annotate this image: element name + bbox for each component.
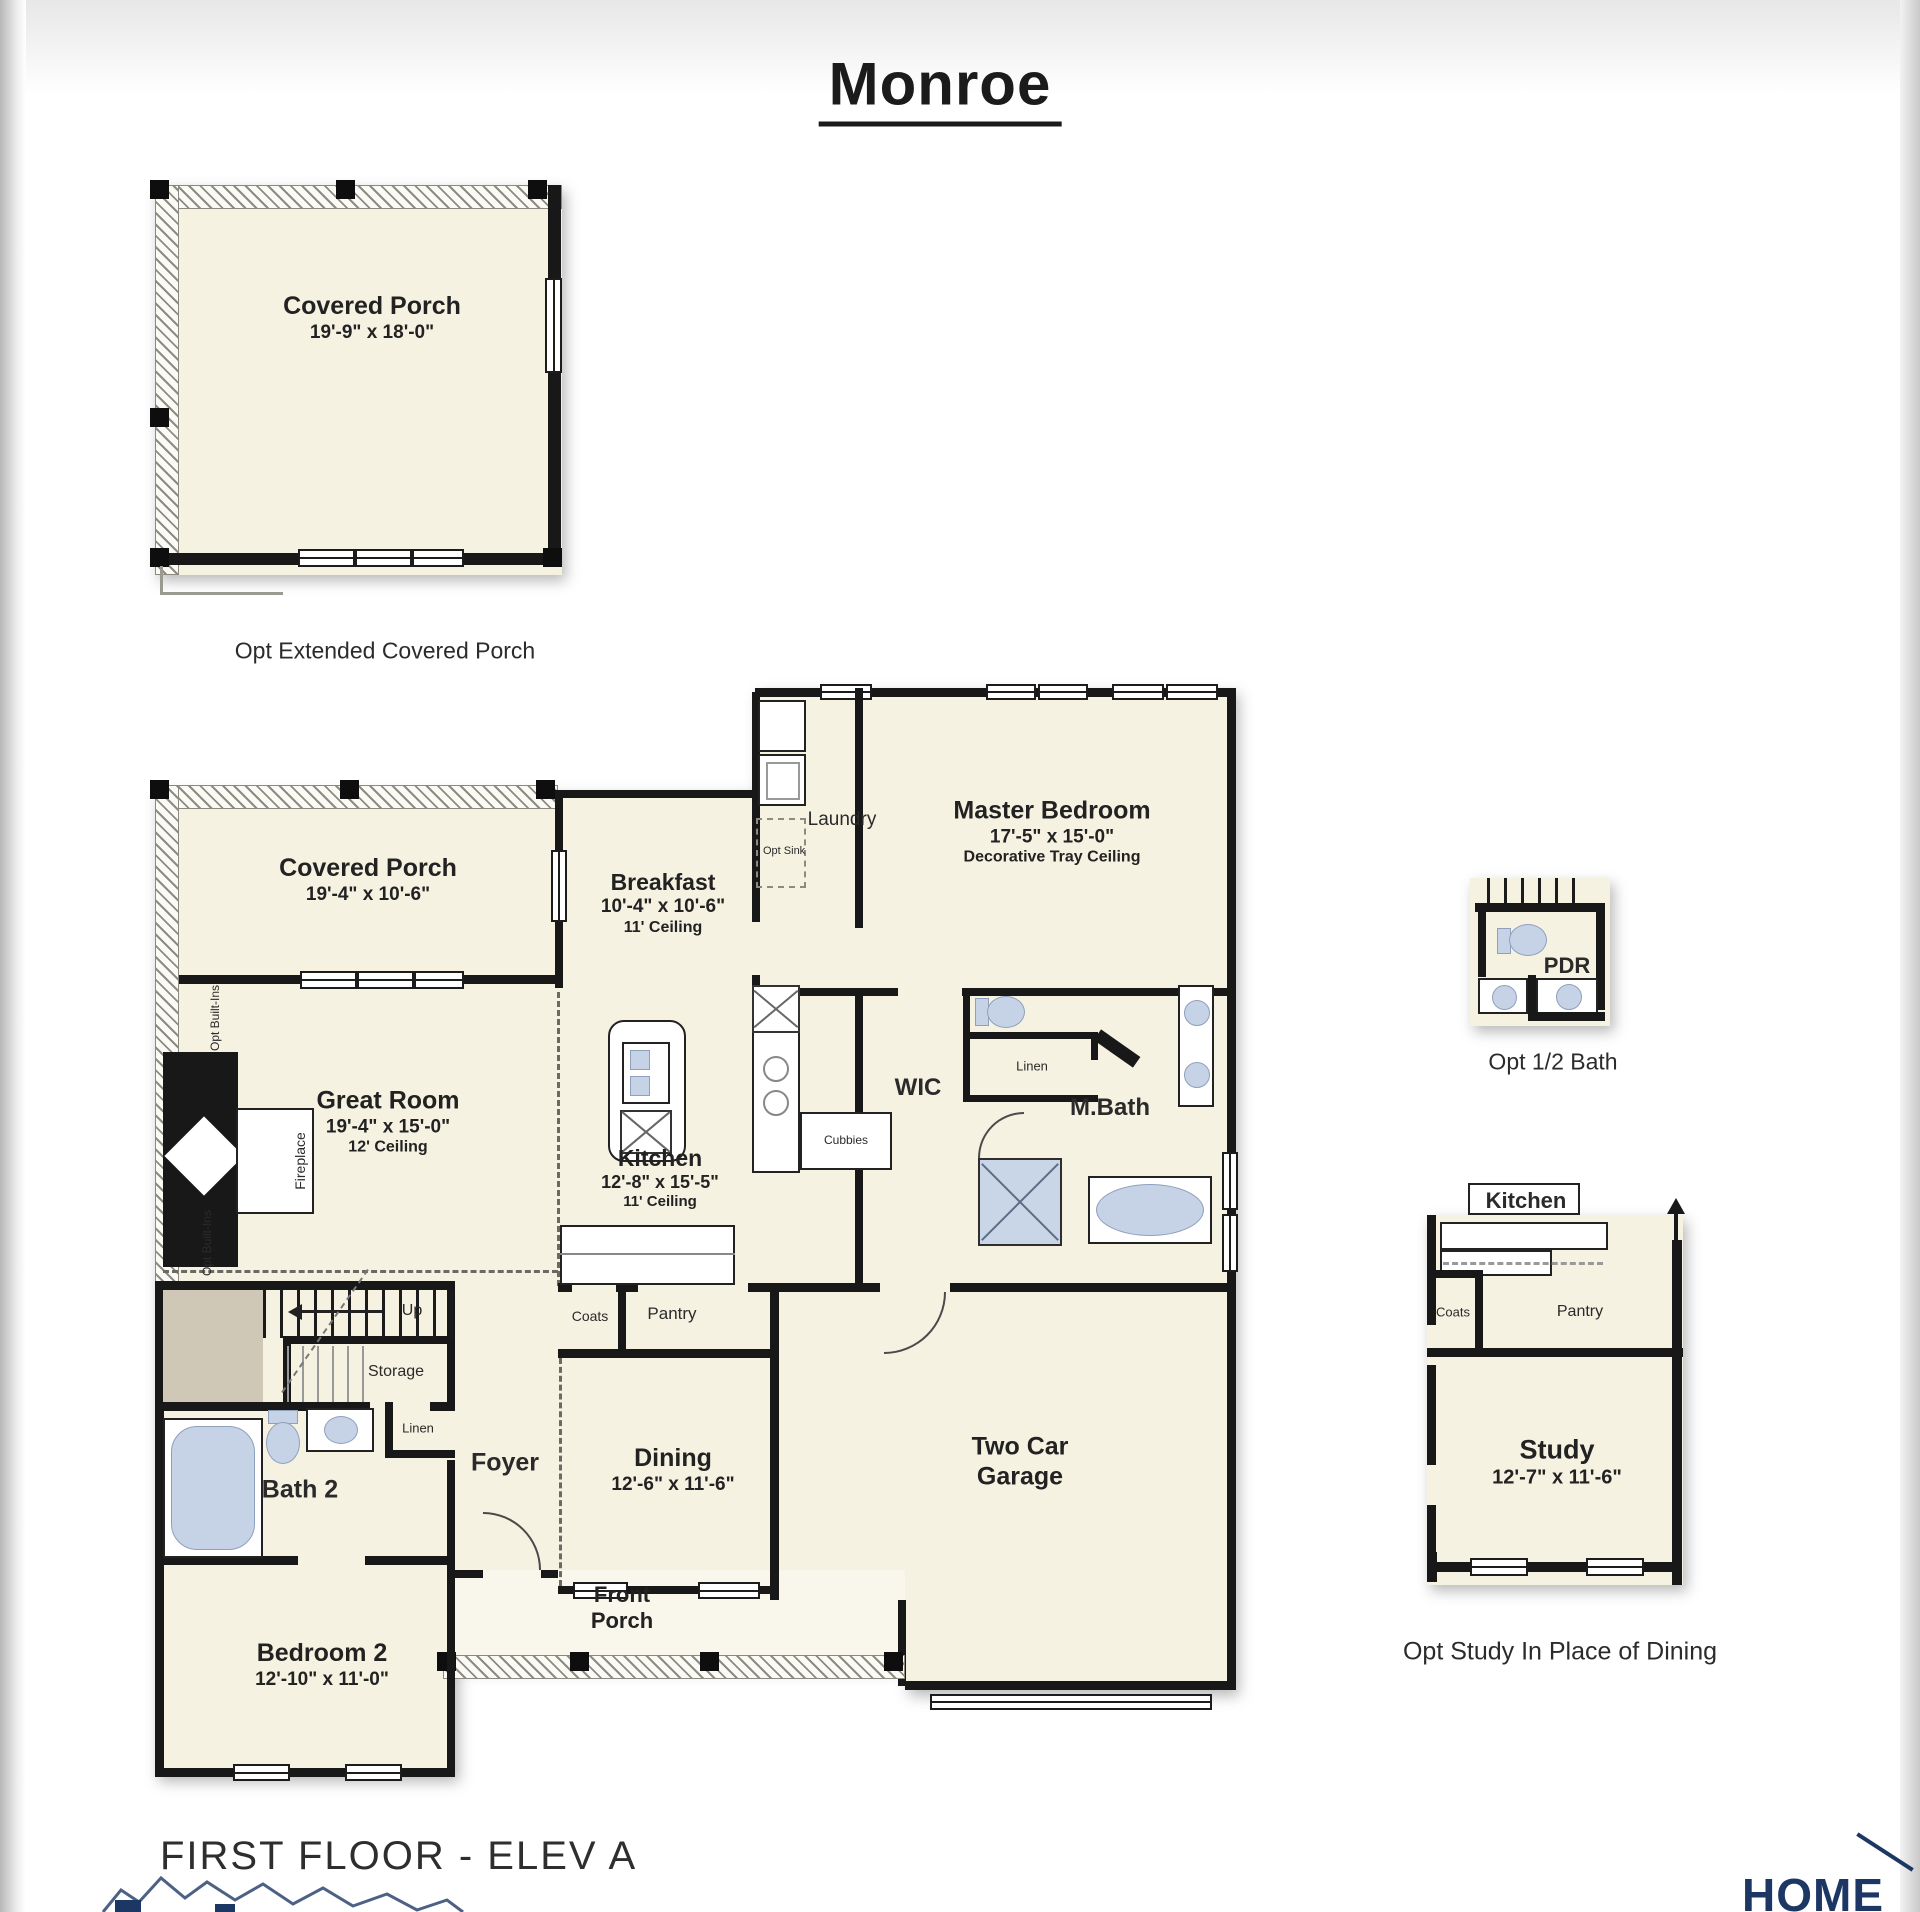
room-name: Breakfast <box>601 869 725 896</box>
wall-segment <box>455 1570 483 1578</box>
window <box>1470 1558 1528 1576</box>
room-name: Great Room <box>316 1087 459 1117</box>
room-label-pdr: PDR <box>1544 953 1590 979</box>
window <box>1166 684 1218 700</box>
wall-segment <box>464 975 558 984</box>
room-note: 11' Ceiling <box>601 1193 719 1211</box>
arrow-up-icon <box>1667 1198 1685 1214</box>
wall-segment <box>365 1556 455 1565</box>
porch-post <box>884 1652 903 1671</box>
room-label-bedroom2: Bedroom 2 12'-10" x 11'-0" <box>255 1639 389 1691</box>
wall-segment <box>385 1450 455 1458</box>
room-label-breakfast: Breakfast 10'-4" x 10'-6" 11' Ceiling <box>601 869 725 937</box>
master-tub <box>1088 1176 1212 1244</box>
room-dims: 12'-8" x 15'-5" <box>601 1172 719 1193</box>
stairs-under <box>287 1346 367 1402</box>
room-label-wic: WIC <box>895 1074 942 1102</box>
room-label-study: Study 12'-7" x 11'-6" <box>1492 1434 1622 1489</box>
porch-post <box>536 780 555 799</box>
wall-segment <box>447 1560 455 1777</box>
storage-label: Storage <box>368 1363 424 1381</box>
wall-segment <box>855 1170 863 1285</box>
room-label-master: Master Bedroom 17'-5" x 15'-0" Decorativ… <box>953 797 1150 868</box>
room-label-extended-porch: Covered Porch 19'-9" x 18'-0" <box>283 292 461 344</box>
front-porch-floor <box>455 1570 905 1665</box>
wall-segment <box>1475 903 1605 912</box>
wall-segment <box>155 1768 455 1777</box>
window <box>1112 684 1164 700</box>
window <box>698 1582 760 1599</box>
wall-segment <box>963 1032 970 1102</box>
porch-edge-hatch <box>155 185 562 209</box>
stairs-up-arrowhead <box>288 1304 302 1320</box>
wall-segment <box>905 1681 1236 1690</box>
wall-segment <box>155 1281 455 1290</box>
inset-caption: Opt 1/2 Bath <box>1488 1049 1617 1076</box>
porch-post <box>340 780 359 799</box>
tub-icon <box>171 1426 255 1550</box>
wall-segment <box>1427 1552 1437 1582</box>
sink-icon <box>1492 985 1517 1010</box>
wall-segment <box>1528 1012 1605 1021</box>
room-dims: 19'-4" x 15'-0" <box>316 1116 459 1138</box>
wall-segment <box>555 922 563 988</box>
room-label-foyer: Foyer <box>471 1449 539 1478</box>
tub-icon <box>1096 1184 1204 1236</box>
kitchen-label-box: Kitchen <box>1468 1183 1580 1215</box>
wall-segment <box>385 1402 393 1457</box>
wall-segment <box>748 1283 880 1292</box>
coats-label: Coats <box>572 1308 609 1324</box>
cubbies-label: Cubbies <box>824 1133 868 1147</box>
wall-segment <box>963 1032 1095 1039</box>
room-dims: 19'-4" x 10'-6" <box>279 884 457 906</box>
stairs <box>1487 878 1575 904</box>
opt-builtins-label: Opt Built-Ins <box>200 1210 214 1276</box>
window <box>414 971 464 989</box>
room-name: Master Bedroom <box>953 797 1150 827</box>
porch-post <box>150 780 169 799</box>
room-label-bath2: Bath 2 <box>262 1476 338 1505</box>
stairs-up-arrow <box>300 1310 382 1313</box>
wall-segment <box>555 790 563 850</box>
window <box>820 684 872 700</box>
porch-edge-hatch <box>443 1655 905 1679</box>
room-dims: 19'-9" x 18'-0" <box>283 322 461 344</box>
wall-segment <box>179 975 300 984</box>
window <box>412 549 464 567</box>
counter-seam <box>560 1253 735 1255</box>
oven-icon <box>763 1090 789 1116</box>
porch-post <box>150 548 169 567</box>
room-label-dining: Dining 12'-6" x 11'-6" <box>611 1444 734 1496</box>
window <box>233 1764 290 1781</box>
oven-icon <box>763 1056 789 1082</box>
room-name: Front Porch <box>572 1582 672 1634</box>
pantry-label: Pantry <box>647 1304 696 1324</box>
wall-segment <box>548 373 561 553</box>
room-label-covered-porch: Covered Porch 19'-4" x 10'-6" <box>279 854 457 906</box>
wall-segment <box>858 988 898 996</box>
up-label: Up <box>402 1302 422 1320</box>
room-name: Kitchen <box>601 1145 719 1172</box>
porch-post <box>700 1652 719 1671</box>
sink-icon <box>1184 1062 1210 1088</box>
counter-dash <box>1443 1262 1603 1265</box>
room-name: Bedroom 2 <box>255 1639 389 1669</box>
arrow-line <box>1674 1212 1678 1248</box>
garage-door <box>930 1694 1212 1710</box>
pantry-label: Pantry <box>1557 1303 1603 1321</box>
cabinet-icon <box>752 985 800 1033</box>
wall-segment <box>618 1283 626 1357</box>
wall-segment <box>1478 903 1486 977</box>
washer-icon <box>758 700 806 752</box>
kitchen-label: Kitchen <box>1486 1188 1567 1214</box>
brand-logo: HOME <box>1742 1868 1884 1912</box>
kitchen-counter <box>1440 1222 1608 1250</box>
window <box>345 1764 402 1781</box>
floor-plan-sheet: Monroe Covered Porch 19'-9" x 18'-0" Opt… <box>0 0 1920 1912</box>
wall-segment <box>541 1570 558 1578</box>
room-note: Decorative Tray Ceiling <box>953 849 1150 868</box>
porch-post <box>570 1652 589 1671</box>
sink-icon <box>1184 1000 1210 1026</box>
room-label-mbath: M.Bath <box>1070 1094 1150 1122</box>
opt-builtins-label: Opt Built-Ins <box>208 985 222 1051</box>
wall-segment <box>548 185 561 278</box>
ceiling-break-line <box>559 1358 562 1586</box>
room-note: 11' Ceiling <box>601 918 725 937</box>
window <box>355 549 412 567</box>
porch-post <box>150 408 169 427</box>
room-name: Covered Porch <box>283 292 461 322</box>
wall-segment <box>1528 975 1536 1017</box>
window <box>300 971 357 989</box>
burner-icon <box>630 1050 650 1070</box>
sink-icon <box>1556 984 1582 1010</box>
window <box>986 684 1036 700</box>
stair-landing <box>163 1290 263 1402</box>
porch-post <box>543 548 562 567</box>
room-label-kitchen: Kitchen 12'-8" x 15'-5" 11' Ceiling <box>601 1145 719 1211</box>
wall-segment <box>1427 1365 1436 1465</box>
window <box>1222 1214 1238 1272</box>
window <box>357 971 414 989</box>
toilet-icon <box>1509 924 1547 956</box>
porch-post <box>150 180 169 199</box>
inset-caption: Opt Extended Covered Porch <box>235 638 535 665</box>
room-name: Dining <box>611 1444 734 1474</box>
window <box>1038 684 1088 700</box>
room-name: Two Car Garage <box>945 1433 1095 1492</box>
wall-segment <box>447 1460 455 1562</box>
kitchen-counter <box>560 1225 735 1285</box>
window <box>551 850 567 922</box>
porch-post <box>336 180 355 199</box>
window <box>1222 1152 1238 1210</box>
room-dims: 12'-6" x 11'-6" <box>611 1474 734 1496</box>
room-label-great-room: Great Room 19'-4" x 15'-0" 12' Ceiling <box>316 1087 459 1158</box>
room-label-laundry: Laundry <box>808 809 877 831</box>
ceiling-break-line <box>163 1270 558 1273</box>
toilet-icon <box>987 996 1025 1028</box>
shower-icon <box>978 1158 1062 1246</box>
wall-segment <box>1427 1348 1683 1357</box>
linen-label: Linen <box>402 1421 434 1436</box>
wall-segment <box>950 1283 1235 1292</box>
fireplace-label: Fireplace <box>292 1132 308 1190</box>
window <box>1586 1558 1644 1576</box>
wall-segment <box>855 995 863 1113</box>
porch-post <box>528 180 547 199</box>
room-dims: 10'-4" x 10'-6" <box>601 896 725 918</box>
room-label-garage: Two Car Garage <box>945 1433 1095 1492</box>
room-dims: 12'-7" x 11'-6" <box>1492 1466 1622 1490</box>
window <box>545 278 562 373</box>
coats-label: Coats <box>1436 1305 1470 1320</box>
window <box>298 549 355 567</box>
builder-logo-icon <box>95 1870 465 1912</box>
wall-segment <box>855 688 863 928</box>
burner-icon <box>630 1076 650 1096</box>
room-dims: 12'-10" x 11'-0" <box>255 1669 389 1691</box>
bath2-tub <box>163 1418 263 1558</box>
toilet-icon <box>266 1422 300 1464</box>
sink-icon <box>324 1416 358 1444</box>
room-label-front-porch: Front Porch <box>572 1582 672 1634</box>
room-name: Covered Porch <box>279 854 457 884</box>
opt-sink-label: Opt Sink <box>763 845 797 857</box>
porch-step <box>160 566 283 595</box>
room-name: Study <box>1492 1434 1622 1466</box>
wall-segment <box>430 1402 455 1411</box>
inset-caption: Opt Study In Place of Dining <box>1403 1638 1717 1667</box>
porch-edge-hatch <box>155 185 179 575</box>
wall-segment <box>558 790 755 798</box>
page-left-edge <box>0 0 26 1912</box>
wall-segment <box>558 1349 775 1358</box>
wall-segment <box>1672 1240 1682 1585</box>
linen-label: Linen <box>1016 1059 1048 1074</box>
wall-segment <box>155 1560 164 1777</box>
wall-segment <box>1475 1270 1483 1356</box>
plan-title: Monroe <box>819 50 1062 127</box>
room-dims: 17'-5" x 15'-0" <box>953 826 1150 848</box>
garage-floor <box>905 1600 1235 1690</box>
wall-segment <box>770 1292 779 1600</box>
extended-porch-floor <box>155 185 562 575</box>
room-note: 12' Ceiling <box>316 1139 459 1158</box>
page-right-edge <box>1900 0 1920 1912</box>
dryer-door-icon <box>766 762 800 800</box>
